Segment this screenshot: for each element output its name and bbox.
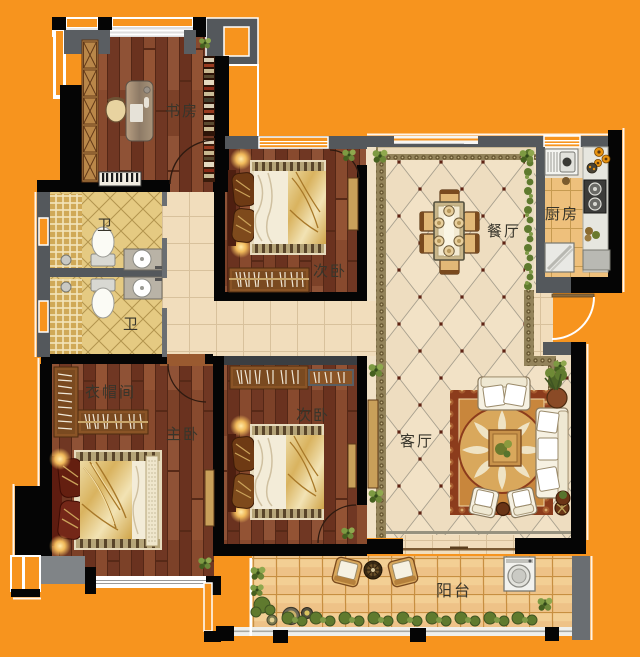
svg-text:卫: 卫 xyxy=(123,316,140,333)
svg-text:客厅: 客厅 xyxy=(400,433,434,450)
svg-text:阳台: 阳台 xyxy=(436,582,472,600)
svg-text:书房: 书房 xyxy=(165,103,199,120)
svg-text:主卧: 主卧 xyxy=(166,426,200,443)
svg-text:卫: 卫 xyxy=(97,217,114,234)
svg-text:次卧: 次卧 xyxy=(313,263,347,280)
svg-text:厨房: 厨房 xyxy=(545,206,579,223)
svg-text:餐厅: 餐厅 xyxy=(487,223,521,240)
svg-text:次卧: 次卧 xyxy=(296,407,330,424)
svg-text:衣帽间: 衣帽间 xyxy=(85,384,136,401)
